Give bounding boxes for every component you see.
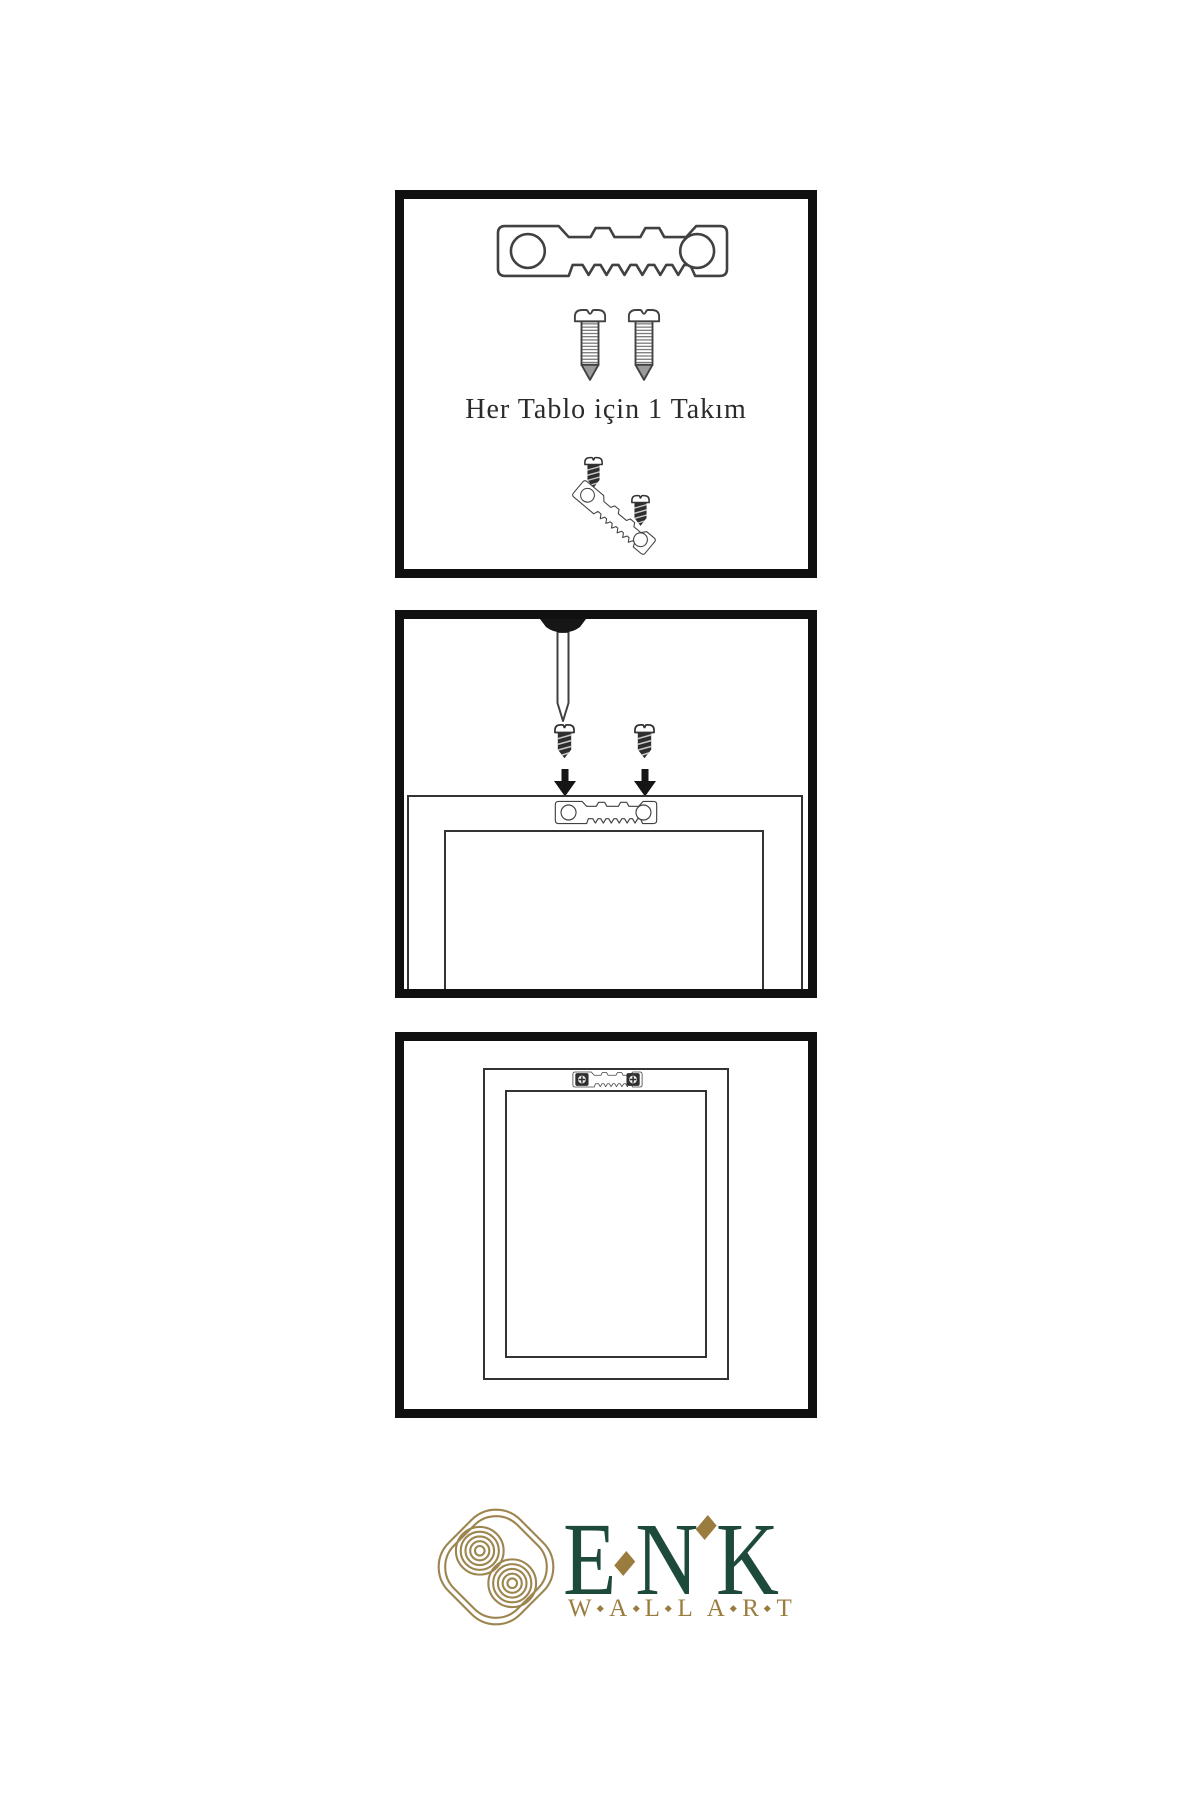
wall-nail-icon (540, 619, 586, 725)
mini-screw-icon (553, 722, 576, 764)
interlaced-knot-icon (433, 1504, 559, 1630)
mini-screw-icon (633, 722, 656, 764)
brand-letter: K (716, 1512, 779, 1608)
tagline-letter: T (776, 1596, 791, 1621)
brand-wordmark: E N K (563, 1512, 773, 1608)
diamond-separator-icon (696, 1515, 717, 1540)
diamond-separator-icon (730, 1605, 736, 1611)
sawtooth-hanger-icon (495, 223, 730, 279)
frame-back-inner-edge (505, 1090, 707, 1358)
tagline-letter: R (742, 1596, 759, 1621)
diamond-separator-icon (614, 1551, 635, 1576)
tagline-letter: A (707, 1596, 725, 1621)
down-arrow-icon (554, 769, 576, 797)
step-2-panel (395, 610, 817, 998)
mini-screw-icon (630, 493, 651, 531)
tagline-letter: L (645, 1596, 660, 1621)
brand-tagline: WALLART (568, 1596, 792, 1621)
diamond-separator-icon (666, 1605, 672, 1611)
brand-letter: N (635, 1512, 698, 1608)
instruction-sheet: Her Tablo için 1 Takım E N K WALLART (0, 0, 1200, 1800)
brand-letter: E (563, 1512, 616, 1608)
down-arrow-icon (634, 769, 656, 797)
sawtooth-hanger-icon (554, 800, 658, 825)
mounted-sawtooth-hanger-icon (572, 1071, 643, 1088)
step-3-panel (395, 1032, 817, 1418)
tagline-letter: A (609, 1596, 627, 1621)
tagline-letter: L (677, 1596, 692, 1621)
frame-back-inner-edge (444, 830, 764, 995)
step-1-panel: Her Tablo için 1 Takım (395, 190, 817, 578)
screw-icon (627, 306, 661, 382)
diamond-separator-icon (633, 1605, 639, 1611)
step-1-caption: Her Tablo için 1 Takım (404, 393, 808, 427)
tagline-letter: W (568, 1596, 592, 1621)
diamond-separator-icon (765, 1605, 771, 1611)
diamond-separator-icon (597, 1605, 603, 1611)
screw-icon (573, 306, 607, 382)
